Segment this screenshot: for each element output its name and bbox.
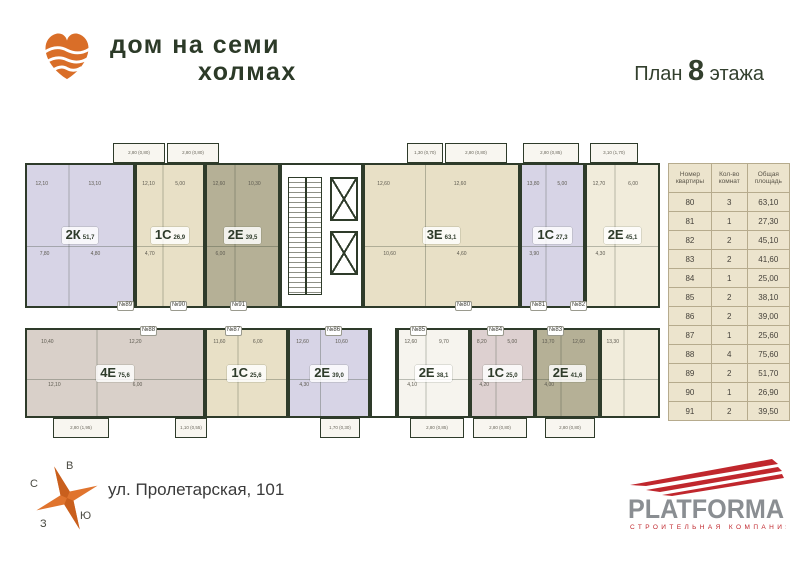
table-cell: 89 xyxy=(669,364,712,383)
table-cell: 3 xyxy=(711,193,747,212)
apartment-2е: 2Е39,012,6010,604,30 xyxy=(288,328,370,418)
room-area-label: 10,60 xyxy=(335,340,348,345)
apartment-label: 2К51,7 xyxy=(62,227,99,244)
room-area-label: 13,80 xyxy=(527,182,540,187)
room-area-label: 6,00 xyxy=(216,252,226,257)
table-row: 84125,00 xyxy=(669,269,790,288)
table-header-cell: Кол-во комнат xyxy=(711,164,747,193)
apartment-door-number: №90 xyxy=(170,301,187,311)
apartment-door-number: №84 xyxy=(487,326,504,336)
room-area-label: 12,60 xyxy=(296,340,309,345)
room-area-label: 13,30 xyxy=(606,340,619,345)
address: ул. Пролетарская, 101 xyxy=(108,480,284,500)
apartment-door-number: №86 xyxy=(325,326,342,336)
room-area-label: 4,20 xyxy=(479,383,489,388)
compass-west-label: З xyxy=(40,518,47,530)
page: дом на семи холмах План 8 этажа 2,80 (0,… xyxy=(0,0,800,566)
room-area-label: 10,60 xyxy=(383,252,396,257)
compass: В С З Ю xyxy=(28,458,106,534)
plan-title-prefix: План xyxy=(634,63,682,85)
room-area-label: 12,60 xyxy=(572,340,585,345)
apartment-door-number: №88 xyxy=(140,326,157,336)
apartment-1с: 1С25,611,606,00 xyxy=(205,328,288,418)
balcony: 1,30 (0,70) xyxy=(407,143,443,163)
room-area-label: 4,70 xyxy=(145,252,155,257)
room-area-label: 10,40 xyxy=(41,340,54,345)
table-cell: 86 xyxy=(669,307,712,326)
balcony: 3,10 (1,70) xyxy=(590,143,638,163)
apartment-door-number: №83 xyxy=(547,326,564,336)
brand-title: дом на семи холмах xyxy=(110,32,297,91)
table-cell: 81 xyxy=(669,212,712,231)
table-cell: 2 xyxy=(711,231,747,250)
corridor xyxy=(25,308,660,328)
balcony: 2,80 (1,95) xyxy=(53,418,109,438)
table-cell: 2 xyxy=(711,307,747,326)
table-cell: 90 xyxy=(669,383,712,402)
elevator-icon xyxy=(330,231,358,275)
plan-title-suffix: этажа xyxy=(710,63,764,85)
table-cell: 2 xyxy=(711,364,747,383)
table-cell: 2 xyxy=(711,288,747,307)
room-area-label: 12,70 xyxy=(593,182,606,187)
room-area-label: 5,00 xyxy=(557,182,567,187)
apartment-1с: 1С25,08,205,004,20 xyxy=(470,328,535,418)
room-area-label: 5,00 xyxy=(175,182,185,187)
room-area-label: 3,90 xyxy=(529,252,539,257)
table-cell: 38,10 xyxy=(747,288,789,307)
table-cell: 1 xyxy=(711,326,747,345)
table-cell: 83 xyxy=(669,250,712,269)
room-area-label: 13,70 xyxy=(542,340,555,345)
room-area-label: 8,20 xyxy=(477,340,487,345)
apartment-label: 1С25,0 xyxy=(483,365,521,382)
apartment-4е: 4Е75,610,4012,2012,106,00 xyxy=(25,328,205,418)
elevator-icon xyxy=(330,177,358,221)
room-area-label: 13,10 xyxy=(88,182,101,187)
room-area-label: 5,00 xyxy=(507,340,517,345)
balcony: 2,80 (0,80) xyxy=(445,143,507,163)
table-cell: 1 xyxy=(711,269,747,288)
room-area-label: 4,60 xyxy=(457,252,467,257)
apartment-label: 1С26,9 xyxy=(151,227,189,244)
apartment-door-number: №89 xyxy=(117,301,134,311)
table-cell: 1 xyxy=(711,383,747,402)
table-cell: 25,00 xyxy=(747,269,789,288)
table-cell: 27,30 xyxy=(747,212,789,231)
table-header-cell: Общая площадь xyxy=(747,164,789,193)
room-area-label: 11,60 xyxy=(213,340,225,345)
compass-south-label: Ю xyxy=(80,510,91,522)
floor-plan: 2,80 (0,80)2,80 (0,80)1,30 (0,70)2,80 (0… xyxy=(25,143,660,445)
table-row: 81127,30 xyxy=(669,212,790,231)
plan-title: План 8 этажа xyxy=(634,55,764,88)
table-row: 88475,60 xyxy=(669,345,790,364)
room-area-label: 4,80 xyxy=(91,252,101,257)
table-row: 83241,60 xyxy=(669,250,790,269)
table-cell: 91 xyxy=(669,402,712,421)
apartment-3е: 3Е63,112,6012,6010,604,60 xyxy=(363,163,520,308)
apartment-1с: 1С27,313,805,003,90 xyxy=(520,163,585,308)
balcony: 2,80 (0,85) xyxy=(523,143,579,163)
brand-logo-icon xyxy=(38,24,96,91)
room-area-label: 12,60 xyxy=(213,182,226,187)
apartment-label: 3Е63,1 xyxy=(423,227,461,244)
apartment-label: 4Е75,6 xyxy=(96,365,134,382)
table-row: 90126,90 xyxy=(669,383,790,402)
brand-title-line1: дом на семи xyxy=(110,32,297,59)
apartment-label: 2Е45,1 xyxy=(604,227,642,244)
balcony: 1,10 (0,55) xyxy=(175,418,207,438)
room-area-label: 4,30 xyxy=(596,252,606,257)
compass-north-label: С xyxy=(30,478,38,490)
table-header-cell: Номер квартиры xyxy=(669,164,712,193)
room-area-label: 6,00 xyxy=(253,340,263,345)
table-cell: 82 xyxy=(669,231,712,250)
table-cell: 25,60 xyxy=(747,326,789,345)
table-row: 85238,10 xyxy=(669,288,790,307)
room-area-label: 4,00 xyxy=(544,383,554,388)
table-cell: 51,70 xyxy=(747,364,789,383)
table-cell: 45,10 xyxy=(747,231,789,250)
room-area-label: 7,80 xyxy=(40,252,50,257)
apartment-2е: 2Е38,112,609,704,10 xyxy=(397,328,470,418)
developer-logo: PLATFORMA СТРОИТЕЛЬНАЯ КОМПАНИЯ xyxy=(608,455,786,538)
room-area-label: 10,30 xyxy=(248,182,261,187)
apartment-1с: 1С26,912,105,004,70 xyxy=(135,163,205,308)
apartment-door-number: №87 xyxy=(225,326,242,336)
room-area-label: 4,10 xyxy=(407,383,417,388)
balcony: 2,80 (0,80) xyxy=(473,418,527,438)
staircase xyxy=(288,177,322,295)
room-area-label: 12,60 xyxy=(377,182,390,187)
apartment-section: 13,30 xyxy=(600,328,660,418)
apartment-door-number: №85 xyxy=(410,326,427,336)
table-cell: 2 xyxy=(711,250,747,269)
table-cell: 75,60 xyxy=(747,345,789,364)
balcony: 2,80 (0,85) xyxy=(410,418,464,438)
room-area-label: 12,60 xyxy=(405,340,418,345)
apartment-2е: 2Е45,112,706,004,30 xyxy=(585,163,660,308)
table-cell: 80 xyxy=(669,193,712,212)
apartment-label: 2Е38,1 xyxy=(415,365,453,382)
apartment-2е: 2Е39,512,6010,306,00 xyxy=(205,163,280,308)
table-cell: 85 xyxy=(669,288,712,307)
apartment-door-number: №81 xyxy=(530,301,547,311)
room-area-label: 12,60 xyxy=(454,182,467,187)
room-area-label: 12,10 xyxy=(142,182,155,187)
table-cell: 4 xyxy=(711,345,747,364)
table-cell: 39,50 xyxy=(747,402,789,421)
developer-name: PLATFORMA xyxy=(628,494,784,524)
table-cell: 2 xyxy=(711,402,747,421)
table-cell: 39,00 xyxy=(747,307,789,326)
developer-tagline: СТРОИТЕЛЬНАЯ КОМПАНИЯ xyxy=(630,524,786,531)
apartment-2к: 2К51,712,1013,107,804,80 xyxy=(25,163,135,308)
table-cell: 87 xyxy=(669,326,712,345)
room-area-label: 12,10 xyxy=(48,383,61,388)
apartment-door-number: №91 xyxy=(230,301,247,311)
apartment-label: 1С25,6 xyxy=(227,365,265,382)
room-area-label: 6,00 xyxy=(133,383,143,388)
plan-floor-number: 8 xyxy=(688,55,704,87)
brand: дом на семи холмах xyxy=(38,24,297,91)
stair-elevator-core xyxy=(280,163,363,308)
compass-east-label: В xyxy=(66,460,73,472)
table-cell: 1 xyxy=(711,212,747,231)
balcony: 2,80 (0,80) xyxy=(545,418,595,438)
apartment-door-number: №80 xyxy=(455,301,472,311)
table-cell: 84 xyxy=(669,269,712,288)
table-row: 80363,10 xyxy=(669,193,790,212)
table-row: 86239,00 xyxy=(669,307,790,326)
balcony: 2,80 (0,80) xyxy=(167,143,219,163)
apartment-label: 1С27,3 xyxy=(533,227,571,244)
table-row: 82245,10 xyxy=(669,231,790,250)
apartment-label: 2Е39,5 xyxy=(224,227,262,244)
table-cell: 41,60 xyxy=(747,250,789,269)
apartments-table: Номер квартирыКол-во комнатОбщая площадь… xyxy=(668,163,790,421)
room-area-label: 4,30 xyxy=(299,383,309,388)
room-area-label: 12,10 xyxy=(35,182,48,187)
room-area-label: 6,00 xyxy=(628,182,638,187)
apartment-label: 2Е39,0 xyxy=(310,365,348,382)
apartment-2е: 2Е41,613,7012,604,00 xyxy=(535,328,600,418)
room-area-label: 9,70 xyxy=(439,340,449,345)
table-cell: 88 xyxy=(669,345,712,364)
table-row: 91239,50 xyxy=(669,402,790,421)
apartment-label: 2Е41,6 xyxy=(549,365,587,382)
table-row: 87125,60 xyxy=(669,326,790,345)
apartment-door-number: №82 xyxy=(570,301,587,311)
table-cell: 63,10 xyxy=(747,193,789,212)
entrance-lobby xyxy=(370,328,397,418)
table-cell: 26,90 xyxy=(747,383,789,402)
table-row: 89251,70 xyxy=(669,364,790,383)
brand-title-line2: холмах xyxy=(110,59,297,86)
balcony: 2,80 (0,80) xyxy=(113,143,165,163)
room-area-label: 12,20 xyxy=(129,340,142,345)
balcony: 1,70 (0,30) xyxy=(320,418,360,438)
